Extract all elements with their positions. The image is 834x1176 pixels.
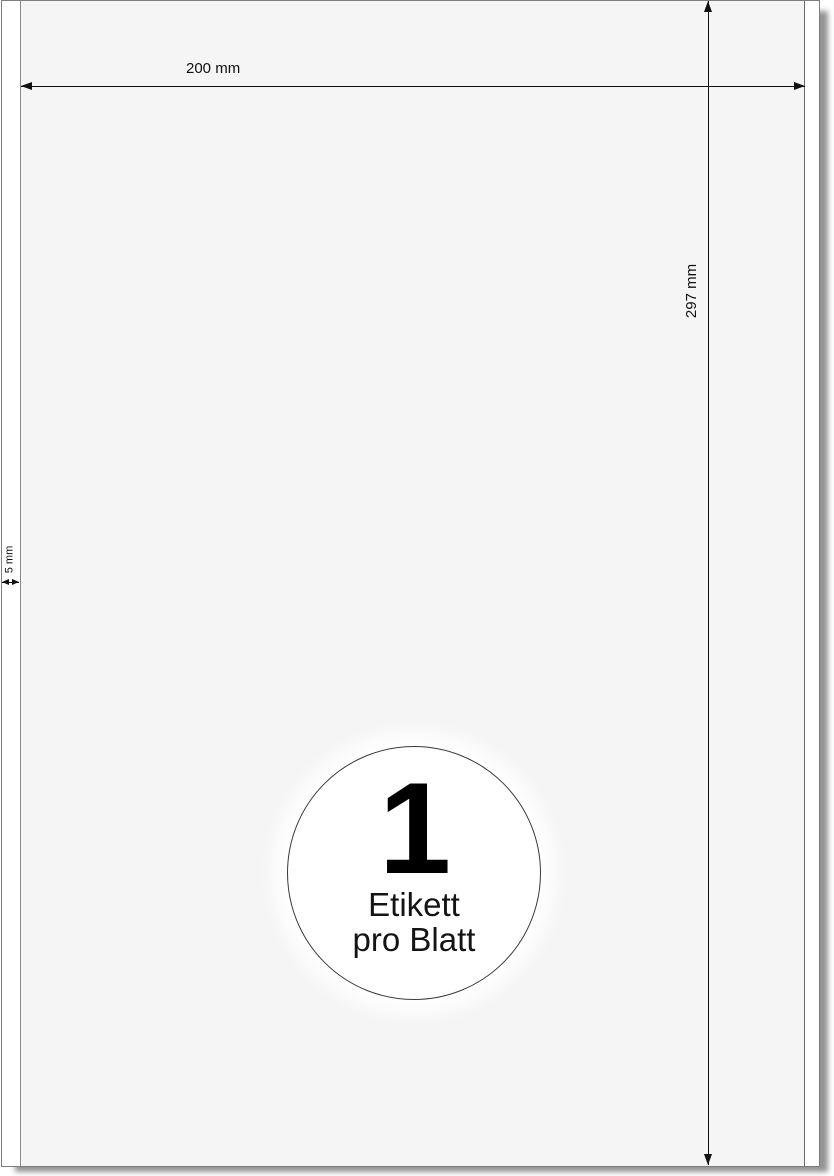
badge-caption-line1: Etikett	[368, 887, 460, 922]
labels-per-sheet-count: 1	[379, 769, 449, 887]
arrowhead-up-icon	[704, 1, 712, 12]
labels-per-sheet-badge: 1 Etikett pro Blatt	[287, 746, 541, 1000]
label-sheet-diagram: 200 mm 297 mm 5 mm 1 Etikett pro Blatt	[0, 0, 834, 1176]
arrowhead-right-icon	[794, 82, 805, 90]
badge-caption-line2: pro Blatt	[353, 922, 476, 957]
arrowhead-down-icon	[704, 1154, 712, 1165]
margin-dimension-label: 5 mm	[4, 525, 17, 595]
height-dimension-line	[708, 1, 709, 1165]
arrowhead-left-icon	[21, 82, 32, 90]
height-dimension-arrow	[704, 1, 713, 1165]
width-dimension-line	[21, 86, 805, 87]
height-dimension-label: 297 mm	[683, 251, 701, 331]
width-dimension-arrow	[21, 82, 805, 91]
width-dimension-label: 200 mm	[186, 60, 240, 78]
